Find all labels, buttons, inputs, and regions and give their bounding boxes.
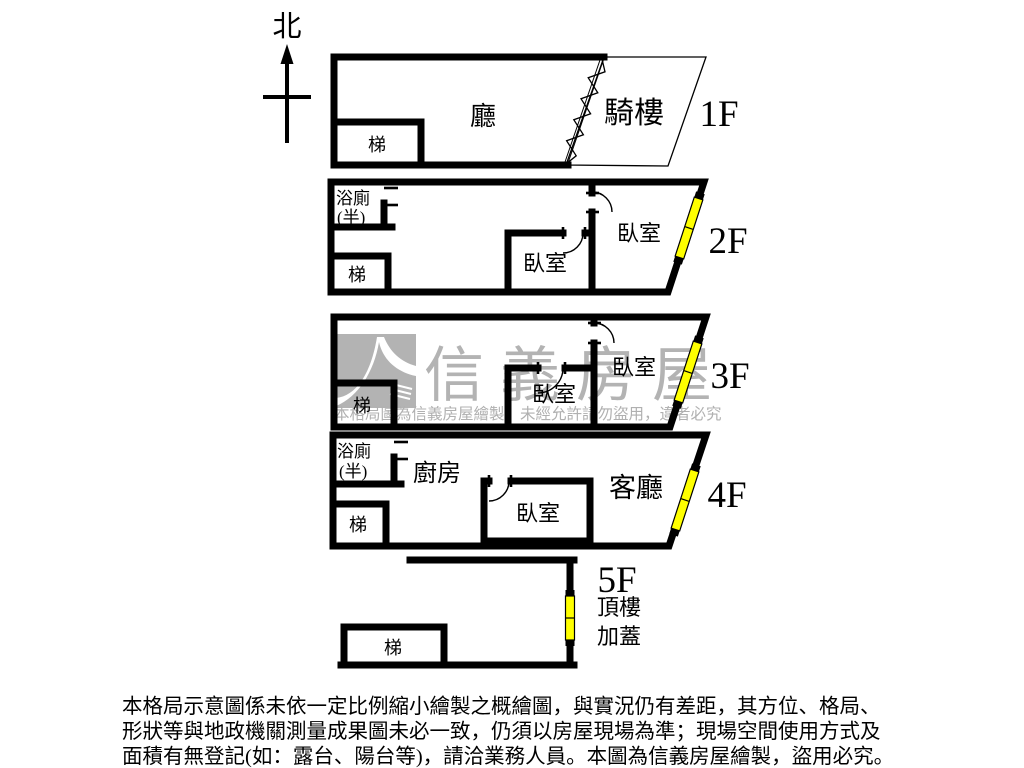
rooftop-label-line2: 加蓋 <box>597 624 641 649</box>
floor-2-label: 2F <box>708 221 747 262</box>
window-cap <box>566 590 575 596</box>
living-room-label: 客廳 <box>609 473 663 503</box>
floor-4-label: 4F <box>707 475 746 516</box>
bedroom-middle-label: 臥室 <box>532 382 576 407</box>
bedroom-right-label: 臥室 <box>612 355 656 380</box>
window-5f <box>566 590 575 646</box>
bathroom-label-line2: (半) <box>339 462 367 481</box>
stairs-label: 梯 <box>349 515 367 535</box>
bathroom-label-line1: 浴廁 <box>336 188 370 208</box>
window-cap <box>566 640 575 646</box>
bedroom-label: 臥室 <box>516 501 560 526</box>
arcade-label: 騎樓 <box>604 97 664 130</box>
rooftop-label-line1: 頂樓 <box>597 595 641 620</box>
bathroom-label-line2: (半) <box>337 208 365 227</box>
disclaimer-line1: 本格局示意圖係未依一定比例縮小繪製之概繪圖，與實況仍有差距，其方位、格局、 <box>122 695 881 718</box>
floor-plan-page: 北 廳 梯 騎樓 1F <box>0 0 1024 768</box>
floor-1-label: 1F <box>699 94 738 135</box>
floor-5: 梯 5F 頂樓 加蓋 <box>341 560 641 665</box>
stairs-label: 梯 <box>348 265 366 285</box>
bedroom-middle-label: 臥室 <box>523 251 567 276</box>
floor-2: 浴廁 (半) 梯 臥室 臥室 2F <box>331 182 748 292</box>
floor-4: 浴廁 (半) 廚房 梯 臥室 客廳 4F <box>333 435 747 546</box>
window-2f <box>673 191 704 264</box>
bedroom-right-label: 臥室 <box>617 221 661 246</box>
window-4f <box>669 463 700 536</box>
hall-label: 廳 <box>470 102 496 131</box>
kitchen-label: 廚房 <box>413 460 461 487</box>
stairs-label: 梯 <box>384 638 402 658</box>
stairs-label: 梯 <box>368 135 386 155</box>
north-compass: 北 <box>263 11 311 143</box>
disclaimer-line2: 形狀等與地政機關測量成果圖未必一致，仍須以房屋現場為準；現場空間使用方式及 <box>122 720 881 743</box>
floor-3-label: 3F <box>710 356 749 397</box>
floor-plan-canvas: 北 廳 梯 騎樓 1F <box>0 0 1024 768</box>
north-label: 北 <box>272 11 301 43</box>
disclaimer-line3: 面積有無登記(如：露台、陽台等)，請洽業務人員。本圖為信義房屋繪製，盜用必究。 <box>122 745 894 768</box>
bathroom-label-line1: 浴廁 <box>337 441 371 461</box>
stairs-label: 梯 <box>353 396 371 416</box>
open-edge-line <box>565 59 601 164</box>
floor-1: 廳 梯 騎樓 1F <box>334 57 739 166</box>
disclaimer: 本格局示意圖係未依一定比例縮小繪製之概繪圖，與實況仍有差距，其方位、格局、 形狀… <box>122 695 894 768</box>
